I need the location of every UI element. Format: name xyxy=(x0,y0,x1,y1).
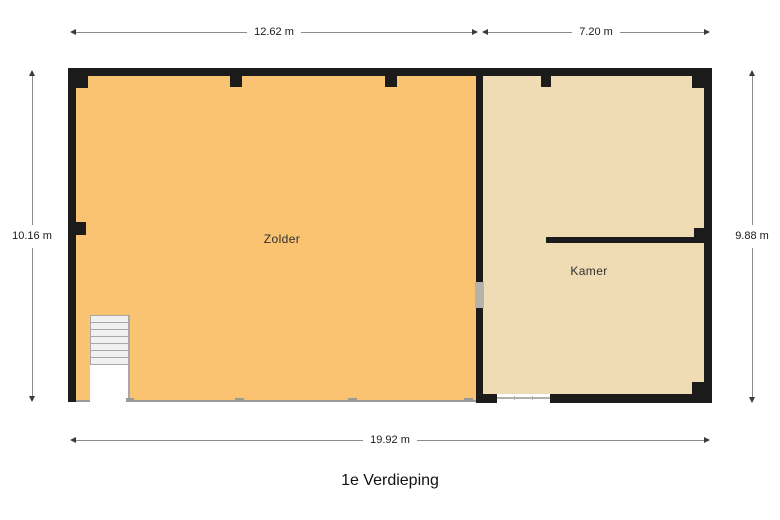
floor-edge-post xyxy=(464,398,473,402)
zolder-floor-edge xyxy=(76,400,476,402)
kamer-interior-wall xyxy=(546,237,704,243)
window-mullion xyxy=(514,396,515,400)
dimension-right: 9.88 m xyxy=(746,70,758,403)
dimension-arrow-icon xyxy=(704,437,710,443)
zolder-room-label: Zolder xyxy=(264,232,300,246)
door-opening xyxy=(475,282,484,308)
outer-wall-top xyxy=(68,68,712,76)
outer-wall-right xyxy=(704,68,712,403)
dimension-top-kamer: 7.20 m xyxy=(482,26,710,38)
kamer-room-floor xyxy=(483,76,704,394)
dimension-top-zolder-label: 12.62 m xyxy=(247,27,301,38)
dimension-arrow-icon xyxy=(29,396,35,402)
wall-stub xyxy=(76,222,86,235)
window-pane-line xyxy=(497,397,550,399)
dimension-arrow-icon xyxy=(749,397,755,403)
stairwell-opening xyxy=(90,364,129,403)
dimension-bottom: 19.92 m xyxy=(70,434,710,446)
dimension-arrow-icon xyxy=(472,29,478,35)
window-mullion xyxy=(532,396,533,400)
separating-wall xyxy=(476,76,483,394)
kamer-interior-wall-junction xyxy=(694,228,704,243)
wall-stub xyxy=(692,382,704,394)
kamer-room-label: Kamer xyxy=(570,264,607,278)
staircase xyxy=(90,315,129,365)
dimension-left: 10.16 m xyxy=(26,70,38,402)
dimension-right-label: 9.88 m xyxy=(735,225,769,248)
window xyxy=(497,394,550,403)
floor-plan-page: Zolder Kamer 12.62 m 7.20 m 10.16 m 9.88… xyxy=(0,0,780,520)
floor-edge-post xyxy=(348,398,357,402)
outer-wall-left xyxy=(68,68,76,402)
dimension-left-label: 10.16 m xyxy=(12,225,52,248)
dimension-top-kamer-label: 7.20 m xyxy=(572,27,620,38)
floor-edge-post xyxy=(235,398,244,402)
wall-stub xyxy=(230,76,242,87)
dimension-bottom-label: 19.92 m xyxy=(363,435,417,446)
floor-edge-post xyxy=(126,398,134,402)
dimension-arrow-icon xyxy=(704,29,710,35)
wall-stub xyxy=(541,76,551,87)
wall-stub xyxy=(385,76,397,87)
wall-stub xyxy=(76,76,88,88)
floor-title: 1e Verdieping xyxy=(0,472,780,490)
dimension-top-zolder: 12.62 m xyxy=(70,26,478,38)
wall-stub xyxy=(692,76,704,88)
